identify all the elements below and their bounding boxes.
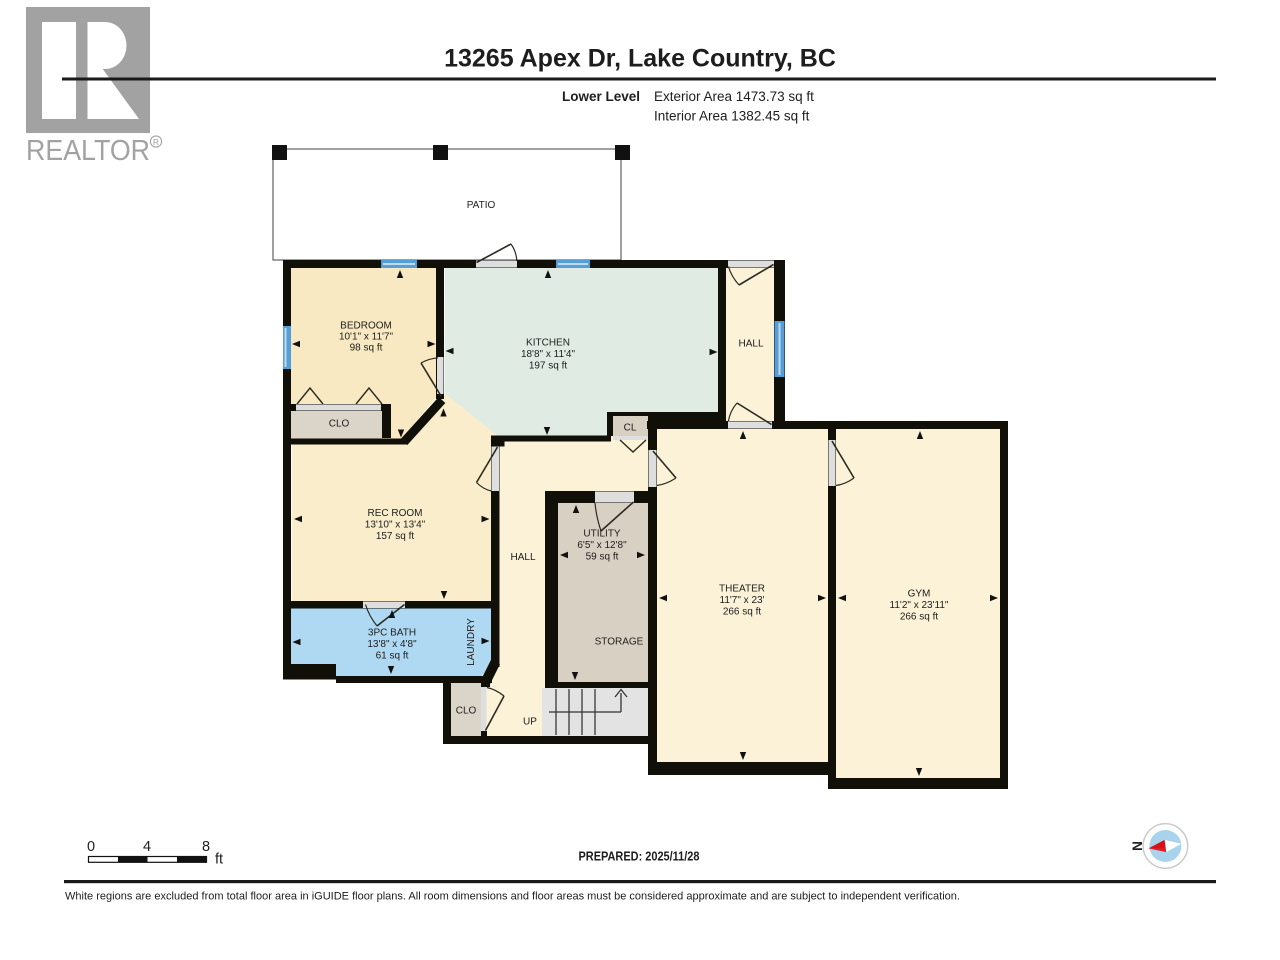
svg-text:6'5" x 12'8": 6'5" x 12'8" (577, 540, 627, 551)
svg-text:White regions are excluded fro: White regions are excluded from total fl… (65, 891, 960, 903)
svg-text:8: 8 (202, 839, 210, 855)
svg-text:PREPARED: 2025/11/28: PREPARED: 2025/11/28 (579, 850, 700, 864)
svg-text:Lower Level: Lower Level (562, 89, 640, 104)
svg-text:REALTOR: REALTOR (26, 135, 150, 167)
svg-text:13'8" x 4'8": 13'8" x 4'8" (367, 639, 417, 650)
svg-text:157 sq ft: 157 sq ft (376, 531, 415, 542)
svg-text:UTILITY: UTILITY (583, 528, 621, 539)
svg-text:4: 4 (143, 839, 151, 855)
svg-text:197 sq ft: 197 sq ft (529, 360, 568, 371)
svg-text:13265 Apex Dr, Lake Country, B: 13265 Apex Dr, Lake Country, BC (444, 45, 836, 73)
svg-text:STORAGE: STORAGE (595, 637, 644, 648)
svg-text:266 sq ft: 266 sq ft (900, 611, 939, 622)
svg-text:R: R (153, 137, 159, 147)
svg-text:10'1" x 11'7": 10'1" x 11'7" (339, 331, 394, 342)
svg-text:18'8" x 11'4": 18'8" x 11'4" (521, 349, 576, 360)
svg-text:ft: ft (215, 852, 223, 868)
svg-text:Exterior Area 1473.73 sq ft: Exterior Area 1473.73 sq ft (654, 89, 814, 104)
svg-text:LAUNDRY: LAUNDRY (466, 618, 477, 666)
svg-text:PATIO: PATIO (467, 200, 496, 211)
svg-text:CLO: CLO (329, 419, 350, 430)
svg-text:UP: UP (523, 717, 537, 728)
svg-text:11'2" x 23'11": 11'2" x 23'11" (890, 600, 949, 611)
svg-text:61 sq ft: 61 sq ft (376, 650, 409, 661)
svg-text:266 sq ft: 266 sq ft (723, 606, 762, 617)
svg-text:0: 0 (87, 839, 95, 855)
svg-text:3PC BATH: 3PC BATH (368, 627, 416, 638)
svg-text:CLO: CLO (456, 706, 477, 717)
svg-text:KITCHEN: KITCHEN (526, 337, 570, 348)
svg-text:Interior Area 1382.45 sq ft: Interior Area 1382.45 sq ft (654, 109, 810, 124)
svg-text:BEDROOM: BEDROOM (340, 320, 392, 331)
svg-text:13'10" x 13'4": 13'10" x 13'4" (365, 519, 426, 530)
svg-text:CL: CL (624, 423, 637, 434)
svg-text:GYM: GYM (908, 588, 931, 599)
svg-text:59 sq ft: 59 sq ft (586, 551, 619, 562)
svg-text:HALL: HALL (510, 552, 535, 563)
svg-text:11'7" x 23': 11'7" x 23' (720, 595, 765, 606)
svg-text:THEATER: THEATER (719, 583, 765, 594)
svg-text:98 sq ft: 98 sq ft (350, 342, 383, 353)
svg-text:HALL: HALL (738, 339, 763, 350)
svg-text:N: N (1130, 841, 1145, 851)
svg-text:REC ROOM: REC ROOM (368, 508, 423, 519)
